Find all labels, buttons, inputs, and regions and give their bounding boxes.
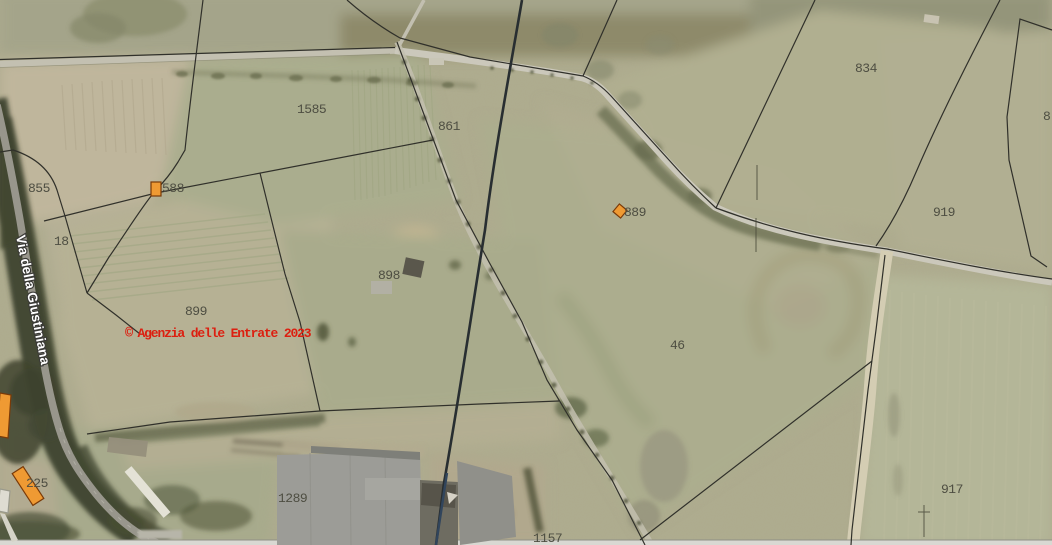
svg-text:917: 917 [941, 482, 963, 497]
svg-text:©: © [125, 327, 133, 342]
svg-text:1289: 1289 [278, 491, 307, 506]
svg-text:919: 919 [933, 205, 955, 220]
svg-text:46: 46 [670, 338, 685, 353]
svg-text:225: 225 [26, 476, 48, 491]
svg-text:18: 18 [54, 234, 69, 249]
svg-text:1585: 1585 [297, 102, 326, 117]
svg-text:898: 898 [378, 268, 400, 283]
svg-text:8: 8 [1043, 109, 1050, 124]
svg-text:834: 834 [855, 61, 878, 76]
svg-text:1157: 1157 [533, 531, 562, 545]
svg-text:855: 855 [28, 181, 50, 196]
svg-text:588: 588 [162, 181, 184, 196]
svg-text:861: 861 [438, 119, 461, 134]
svg-text:889: 889 [624, 205, 646, 220]
svg-text:899: 899 [185, 304, 207, 319]
svg-text:Agenzia delle Entrate 2023: Agenzia delle Entrate 2023 [138, 326, 312, 341]
